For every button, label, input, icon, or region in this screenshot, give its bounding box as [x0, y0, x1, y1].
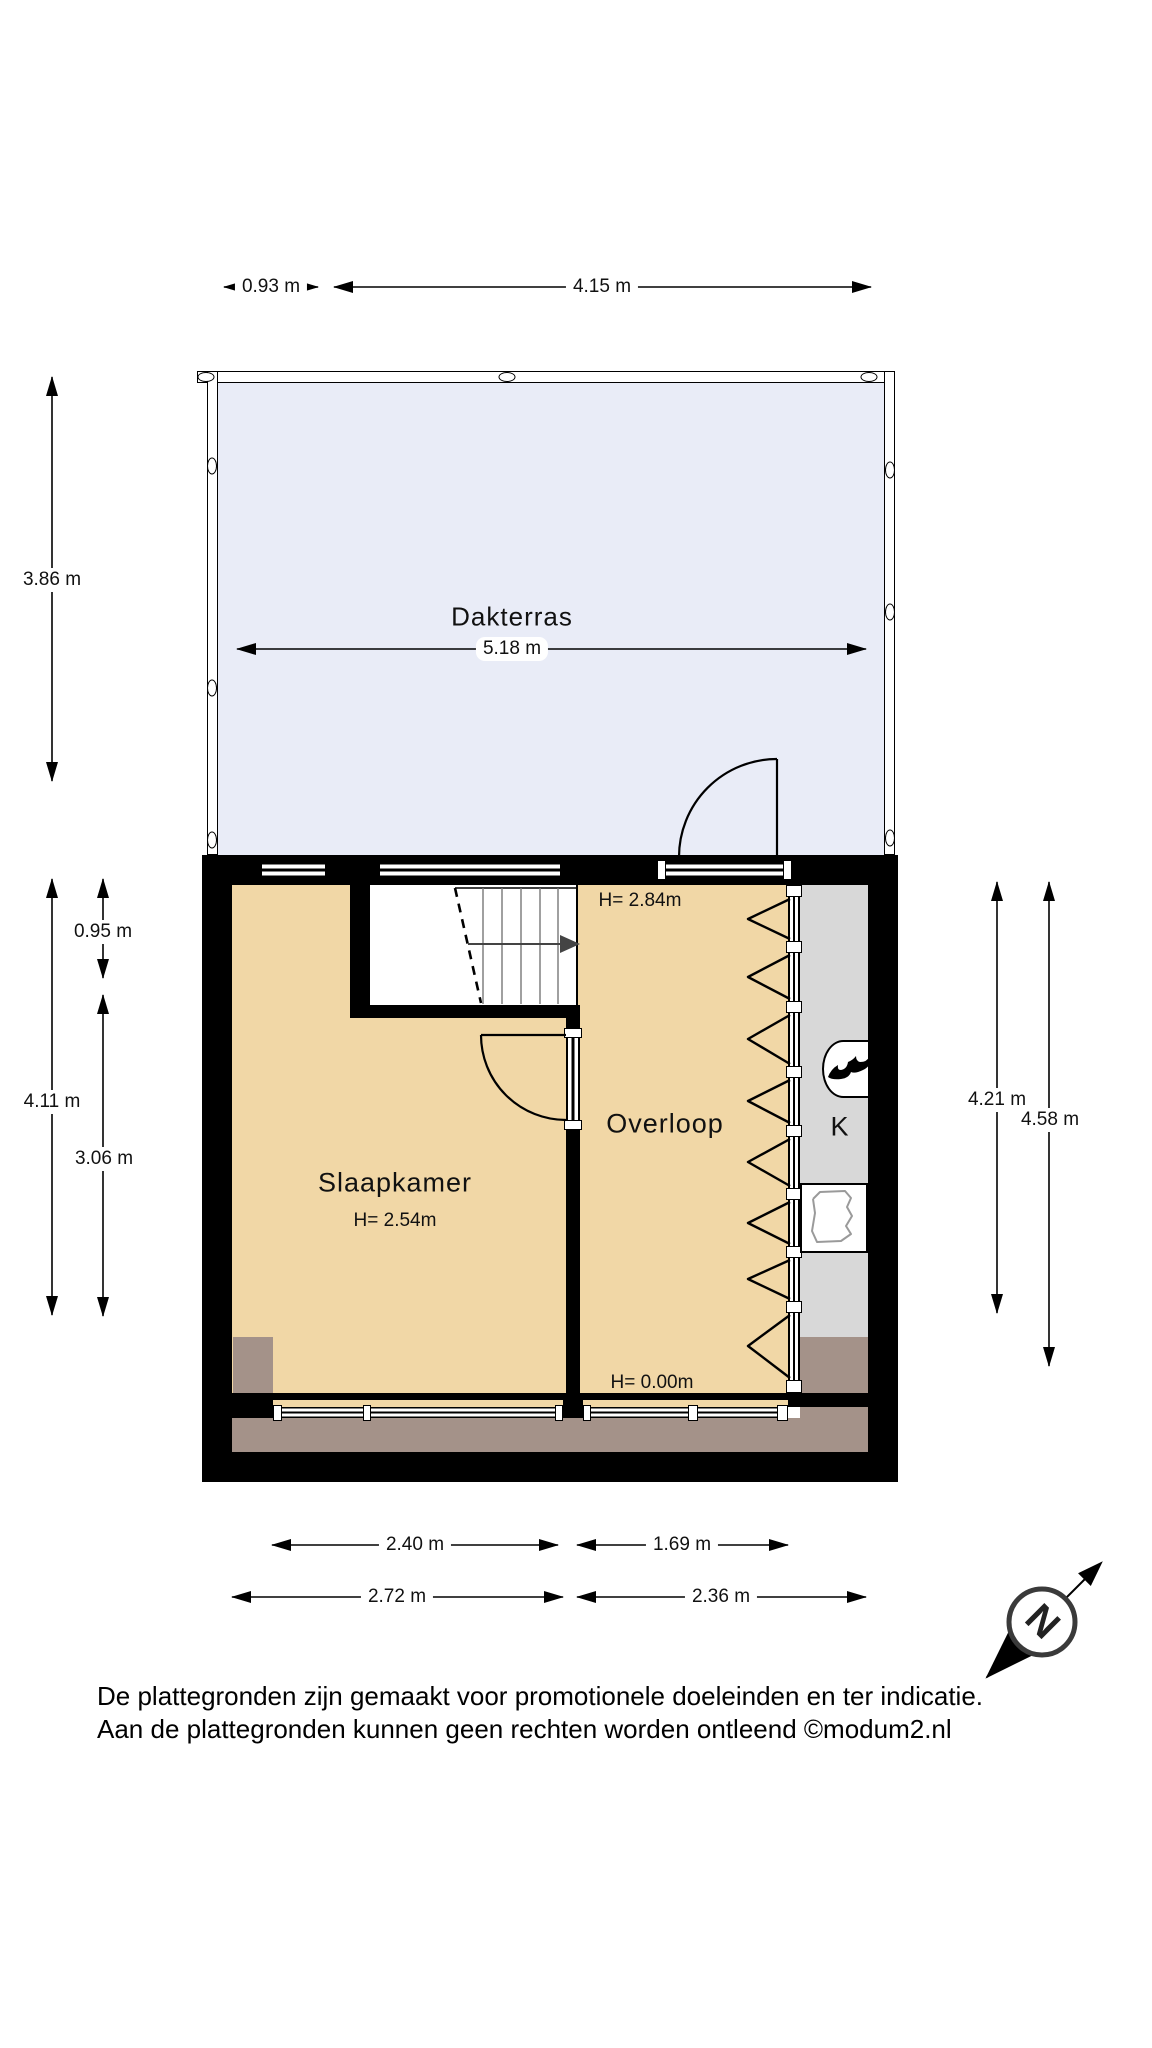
window	[371, 1407, 555, 1418]
roof-strip-bottom	[232, 1418, 868, 1452]
wall-right	[868, 855, 898, 1482]
bedroom-label: Slaapkamer	[318, 1168, 472, 1199]
disclaimer: De plattegronden zijn gemaakt voor promo…	[97, 1680, 983, 1746]
dim-top-left: 0.93 m	[235, 275, 307, 299]
railing-post	[207, 832, 217, 849]
basin-box	[800, 1183, 868, 1253]
fold-jamb	[786, 885, 802, 897]
window-jamb	[777, 1405, 788, 1421]
interior-wall	[566, 1130, 580, 1397]
window	[591, 1407, 688, 1418]
dim-top-right: 4.15 m	[566, 275, 638, 299]
dim-left-lower: 3.06 m	[73, 1147, 135, 1171]
knee-wall	[232, 1393, 868, 1400]
terrace-railing-top	[197, 371, 895, 383]
dim-bottom-inner-left: 2.40 m	[379, 1533, 451, 1557]
window-jamb	[688, 1405, 698, 1421]
dim-left-terrace: 3.86 m	[21, 568, 83, 592]
landing-label: Overloop	[606, 1109, 724, 1140]
fold-jamb	[786, 1001, 802, 1013]
stair-wall-bottom	[350, 1005, 580, 1018]
knee-wall-chunk	[232, 1393, 273, 1418]
wall-left	[202, 855, 232, 1482]
edge-height-label: H= 0.00m	[611, 1372, 694, 1394]
terrace-width-dim: 5.18 m	[476, 637, 548, 661]
window	[698, 1407, 777, 1418]
railing-post	[207, 680, 217, 697]
window-jamb	[363, 1405, 371, 1421]
folding-door-wall	[788, 885, 800, 1393]
dim-bottom-outer-left: 2.72 m	[361, 1585, 433, 1609]
window-jamb	[555, 1405, 563, 1421]
railing-post	[885, 604, 895, 621]
door-jamb	[657, 860, 666, 880]
stair-edge-line	[576, 885, 578, 1005]
window-jamb	[273, 1405, 282, 1421]
window-jamb	[583, 1405, 591, 1421]
disclaimer-line-1: De plattegronden zijn gemaakt voor promo…	[97, 1680, 983, 1713]
window	[380, 862, 560, 878]
railing-post	[499, 372, 516, 382]
bedroom-ceiling-height: H= 2.54m	[354, 1210, 437, 1232]
terrace-label: Dakterras	[451, 602, 573, 633]
dim-left-full: 4.11 m	[22, 1090, 83, 1114]
closet-label: K	[830, 1112, 849, 1143]
window	[282, 1407, 363, 1418]
boiler-unit	[822, 1040, 870, 1098]
disclaimer-line-2: Aan de plattegronden kunnen geen rechten…	[97, 1713, 983, 1746]
door-jamb	[564, 1028, 582, 1038]
fold-jamb	[786, 941, 802, 953]
terrace-door-threshold	[666, 862, 783, 878]
fold-jamb	[786, 1380, 802, 1393]
fold-jamb	[786, 1125, 802, 1137]
knee-wall-right	[788, 1393, 898, 1407]
dim-bottom-outer-right: 2.36 m	[685, 1585, 757, 1609]
interior-door-panel	[566, 1038, 580, 1120]
stairwell	[370, 885, 578, 1005]
stair-wall-left	[350, 885, 370, 1018]
interior-wall	[566, 1018, 580, 1028]
dim-bottom-inner-right: 1.69 m	[646, 1533, 718, 1557]
wall-bottom	[202, 1452, 898, 1482]
door-jamb	[564, 1120, 582, 1130]
door-jamb	[783, 860, 792, 880]
railing-post	[198, 372, 215, 382]
dim-right-outer: 4.58 m	[1019, 1108, 1081, 1132]
fold-jamb	[786, 1066, 802, 1078]
railing-post	[207, 458, 217, 475]
fold-jamb	[786, 1301, 802, 1313]
railing-post	[885, 462, 895, 479]
dim-left-upper: 0.95 m	[72, 920, 134, 944]
floorplan-canvas: Dakterras 5.18 m Slaapkamer H= 2.54m Ove…	[0, 0, 1152, 2048]
railing-post	[861, 372, 878, 382]
compass-north-label: N	[1016, 1596, 1068, 1648]
bedroom-roof-slope	[233, 1337, 273, 1397]
railing-post	[885, 830, 895, 847]
terrace-railing-left	[207, 371, 218, 855]
knee-wall-pier	[563, 1393, 583, 1418]
window	[262, 862, 325, 878]
landing-floor	[578, 885, 788, 1407]
landing-ceiling-height: H= 2.84m	[599, 890, 682, 912]
